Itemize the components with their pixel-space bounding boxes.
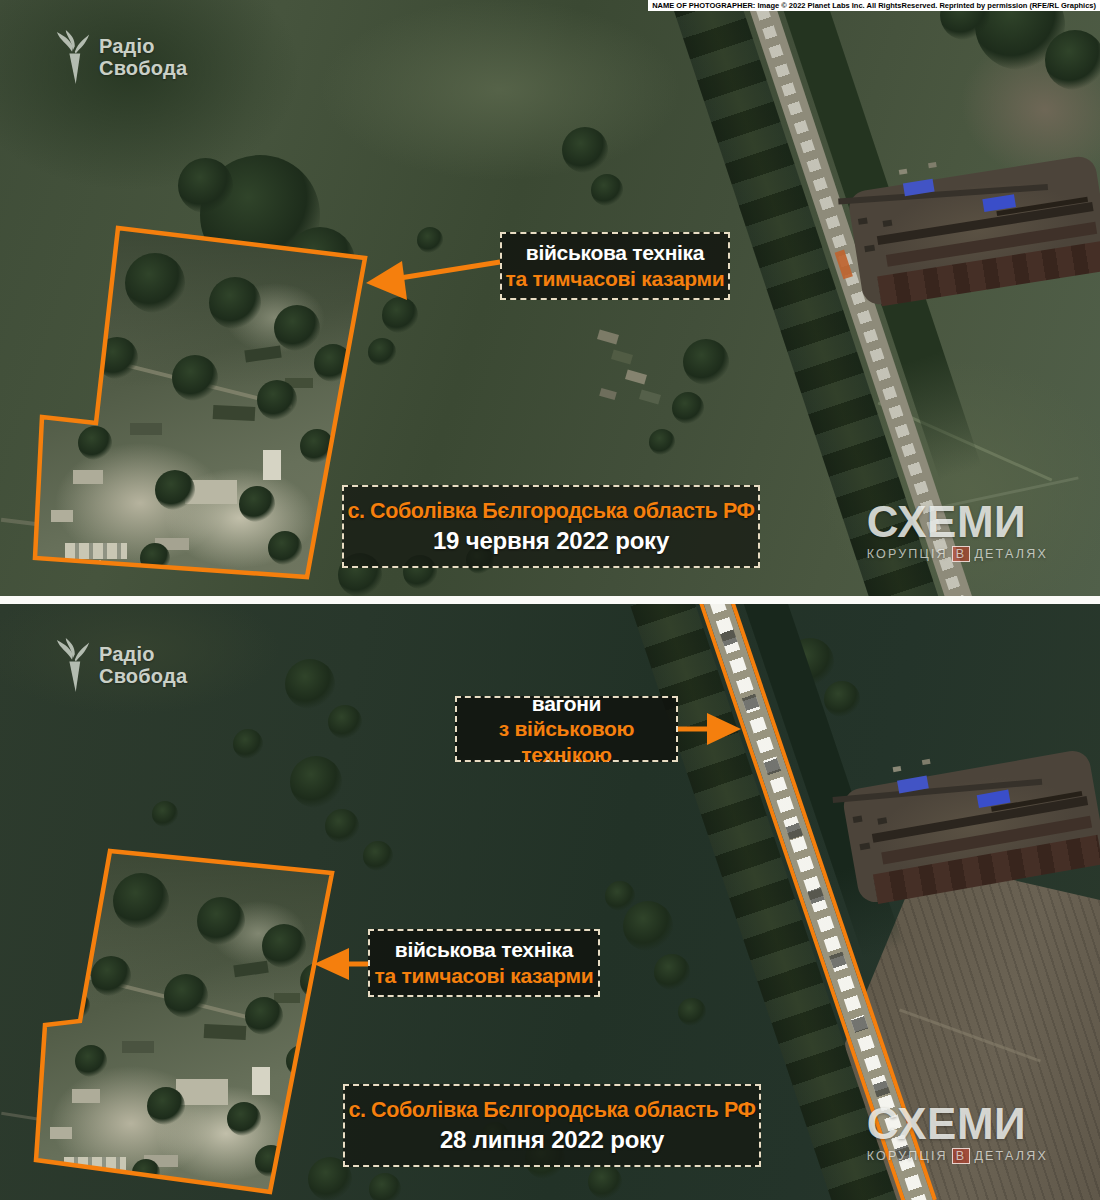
garden-plot <box>625 369 647 384</box>
caption-location: с. Соболівка Бєлгородська область РФ <box>348 1098 755 1123</box>
schemes-tagline-1: КОРУПЦІЯ <box>867 1149 948 1163</box>
tree-cluster <box>325 809 359 843</box>
photo-credit: NAME OF PHOTOGRAPHER: Image © 2022 Plane… <box>648 0 1100 11</box>
tree-cluster <box>654 954 690 990</box>
callout-military-equipment: військова техніка та тимчасові казарми <box>500 232 730 300</box>
tree-cluster <box>678 998 706 1026</box>
infographic-satellite-comparison: NAME OF PHOTOGRAPHER: Image © 2022 Plane… <box>0 0 1100 1200</box>
tree-cluster <box>178 158 233 213</box>
tree-cluster <box>363 841 393 871</box>
tree-cluster <box>164 974 208 1018</box>
tree-cluster <box>78 426 112 460</box>
tree-cluster <box>155 470 195 510</box>
caption-date: 19 червня 2022 року <box>433 527 669 555</box>
tree-cluster <box>368 338 396 366</box>
vehicle <box>893 766 902 772</box>
tree-cluster <box>233 729 263 759</box>
vehicle <box>922 759 931 765</box>
radio-svoboda-logo: Радіо Свобода <box>55 636 187 696</box>
radio-svoboda-line1: Радіо <box>99 644 187 666</box>
garden-plot <box>639 389 661 404</box>
schemes-title: СХЕМИ <box>867 1103 1048 1145</box>
tree-cluster <box>91 956 131 996</box>
tree-cluster <box>683 339 729 385</box>
building <box>50 1127 72 1139</box>
tree-cluster <box>328 705 362 739</box>
tree-cluster <box>209 277 261 329</box>
tree-cluster <box>197 897 245 945</box>
tree-cluster <box>147 1087 185 1125</box>
satellite-panel-june: NAME OF PHOTOGRAPHER: Image © 2022 Plane… <box>0 0 1100 596</box>
caption-location: с. Соболівка Бєлгородська область РФ <box>347 499 754 524</box>
tree-cluster <box>285 659 335 709</box>
tree-cluster <box>649 429 675 455</box>
schemes-logo: СХЕМИ КОРУПЦІЯ В ДЕТАЛЯХ <box>867 501 1048 562</box>
building <box>274 993 300 1003</box>
tree-cluster <box>591 174 623 206</box>
tree-cluster <box>75 1045 107 1077</box>
callout-line2: з військовою технікою <box>457 716 676 767</box>
tree-cluster <box>268 531 302 565</box>
callout-military-equipment: військова техніка та тимчасові казарми <box>368 929 600 997</box>
building <box>263 450 281 480</box>
building <box>51 510 73 522</box>
tree-cluster <box>245 997 283 1035</box>
callout-line2: та тимчасові казарми <box>375 963 594 989</box>
tree-cluster <box>623 901 673 951</box>
building <box>72 1089 100 1103</box>
tree-cluster <box>1045 30 1100 90</box>
schemes-tagline-1: КОРУПЦІЯ <box>867 547 948 561</box>
tree-cluster <box>227 1102 261 1136</box>
tree-cluster <box>417 227 443 253</box>
schemes-tagline-3: ДЕТАЛЯХ <box>974 1149 1048 1163</box>
schemes-tagline-2: В <box>952 546 971 562</box>
callout-line1: військова техніка <box>526 240 704 266</box>
tree-cluster <box>172 355 218 401</box>
barracks <box>65 543 127 559</box>
tree-cluster <box>672 392 704 424</box>
tree-cluster <box>125 253 185 313</box>
tree-cluster <box>382 297 418 333</box>
schemes-title: СХЕМИ <box>867 501 1048 543</box>
radio-svoboda-line1: Радіо <box>99 36 187 58</box>
callout-line1: військова техніка <box>395 937 573 963</box>
field-patch <box>320 0 680 180</box>
radio-svoboda-logo: Радіо Свобода <box>55 28 187 88</box>
tree-cluster <box>369 1173 401 1200</box>
schemes-logo: СХЕМИ КОРУПЦІЯ В ДЕТАЛЯХ <box>867 1103 1048 1164</box>
tree-cluster <box>257 380 297 420</box>
radio-svoboda-line2: Свобода <box>99 666 187 688</box>
tree-cluster <box>113 873 169 929</box>
tree-cluster <box>605 881 635 911</box>
radio-svoboda-torch-icon <box>55 636 91 696</box>
callout-line1: вагони <box>532 691 601 717</box>
vehicle <box>928 162 937 168</box>
garden-plot <box>599 388 617 400</box>
panel-divider <box>0 596 1100 604</box>
building <box>204 1024 247 1040</box>
schemes-tagline-2: В <box>952 1148 971 1164</box>
satellite-panel-july: Радіо Свобода вагони з військовою технік… <box>0 604 1100 1200</box>
radio-svoboda-line2: Свобода <box>99 58 187 80</box>
caption-location-date: с. Соболівка Бєлгородська область РФ 19 … <box>342 485 760 568</box>
callout-line2: та тимчасові казарми <box>506 266 725 292</box>
tree-cluster <box>290 756 342 808</box>
callout-wagons: вагони з військовою технікою <box>455 696 678 762</box>
tree-cluster <box>239 486 275 522</box>
tree-cluster <box>152 801 178 827</box>
tree-cluster <box>562 127 608 173</box>
schemes-tagline-3: ДЕТАЛЯХ <box>974 547 1048 561</box>
caption-date: 28 липня 2022 року <box>440 1126 664 1154</box>
building <box>252 1067 270 1095</box>
building <box>130 423 162 435</box>
tree-cluster <box>588 1165 622 1199</box>
radio-svoboda-torch-icon <box>55 28 91 88</box>
caption-location-date: с. Соболівка Бєлгородська область РФ 28 … <box>343 1084 761 1167</box>
garden-plot <box>597 329 619 344</box>
tree-cluster <box>274 305 320 351</box>
tree-cluster <box>262 924 306 968</box>
vehicle <box>899 169 908 175</box>
garden-plot <box>611 349 633 364</box>
building <box>213 405 256 421</box>
building <box>73 470 103 484</box>
building <box>122 1041 154 1053</box>
